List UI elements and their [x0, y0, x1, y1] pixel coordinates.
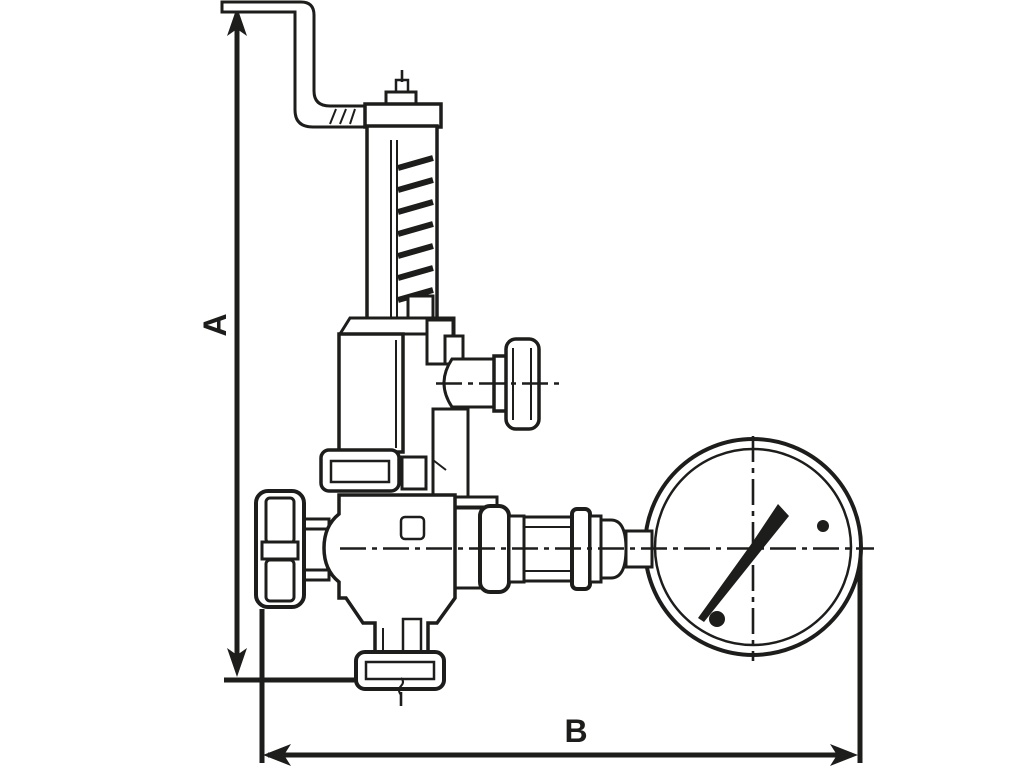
housing-cap: [365, 104, 441, 127]
valve-body: [299, 495, 455, 653]
dimension-a-label: A: [197, 313, 233, 336]
bonnet-cylinder: [339, 334, 403, 452]
needle-hub-dot: [709, 611, 725, 627]
test-lever-rod: [222, 2, 375, 127]
bottom-union: [356, 652, 444, 695]
spring-housing: [365, 80, 441, 331]
pressure-gauge: [626, 439, 861, 655]
dimension-b-label: B: [564, 713, 587, 749]
handwheel-hub: [262, 542, 298, 559]
stem-guide: [402, 457, 426, 489]
right-column-lower: [433, 409, 468, 497]
lever-rod-outline: [222, 2, 375, 127]
bottom-union-nut: [356, 652, 444, 689]
drawing-canvas: A B: [0, 0, 1024, 766]
dial-dot: [817, 520, 829, 532]
shutoff-handwheel: [256, 491, 304, 607]
body-outline: [324, 495, 455, 653]
mid-union-nut: [321, 450, 399, 491]
technical-drawing: A B: [0, 0, 1024, 766]
